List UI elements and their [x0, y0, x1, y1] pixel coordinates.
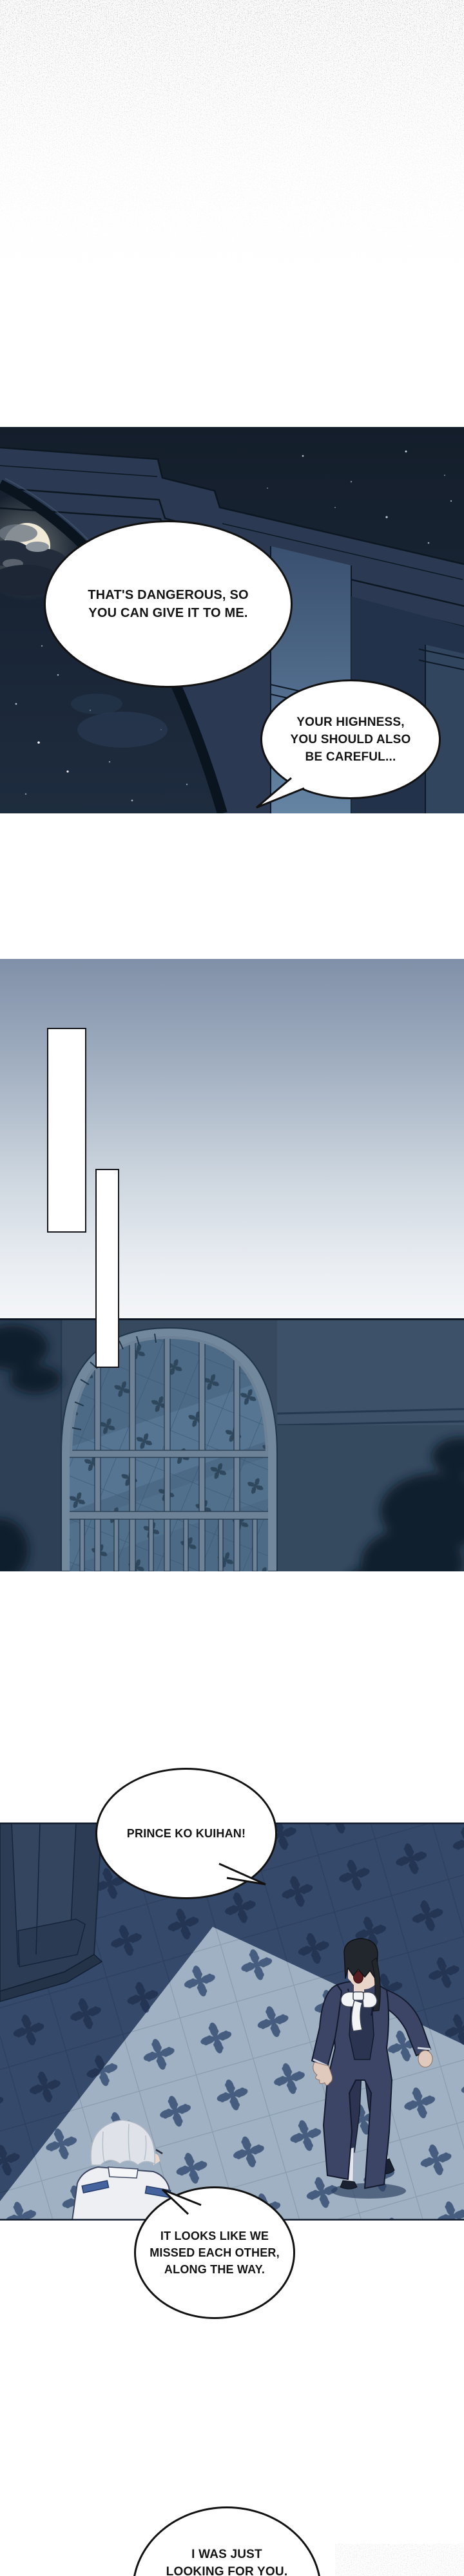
bubble-2-line-1: YOUR HIGHNESS, — [296, 714, 405, 731]
speech-bubble-1: THAT'S DANGEROUS, SO YOU CAN GIVE IT TO … — [44, 520, 293, 688]
bubble-2-line-3: BE CAREFUL... — [305, 748, 396, 766]
caption-box-2 — [95, 1169, 119, 1368]
comic-page: THAT'S DANGEROUS, SO YOU CAN GIVE IT TO … — [0, 0, 464, 2576]
bubble-1-line-2: YOU CAN GIVE IT TO ME. — [88, 604, 247, 622]
screentone-grain-top — [0, 0, 464, 277]
speech-bubble-4-tail — [156, 2183, 211, 2222]
cloud-wisp — [77, 712, 168, 748]
bubble-3-line-1: PRINCE KO KUIHAN! — [127, 1825, 246, 1842]
bubble-4-line-2: MISSED EACH OTHER, — [150, 2244, 280, 2261]
bubble-1-line-1: THAT'S DANGEROUS, SO — [88, 586, 249, 604]
screentone-grain-bottom — [335, 2544, 464, 2576]
speech-bubble-5: I WAS JUST LOOKING FOR YOU. — [132, 2506, 322, 2576]
panel-arched-window — [0, 1318, 464, 1571]
bubble-5-line-1: I WAS JUST — [191, 2546, 262, 2563]
bubble-4-line-1: IT LOOKS LIKE WE — [160, 2228, 269, 2244]
bubble-5-line-2: LOOKING FOR YOU. — [166, 2563, 288, 2576]
speech-bubble-3-tail — [213, 1859, 274, 1892]
bubble-4-line-3: ALONG THE WAY. — [164, 2261, 265, 2278]
speech-bubble-2-tail — [251, 770, 309, 811]
bubble-2-line-2: YOU SHOULD ALSO — [290, 731, 411, 748]
caption-box-1 — [47, 1028, 86, 1233]
